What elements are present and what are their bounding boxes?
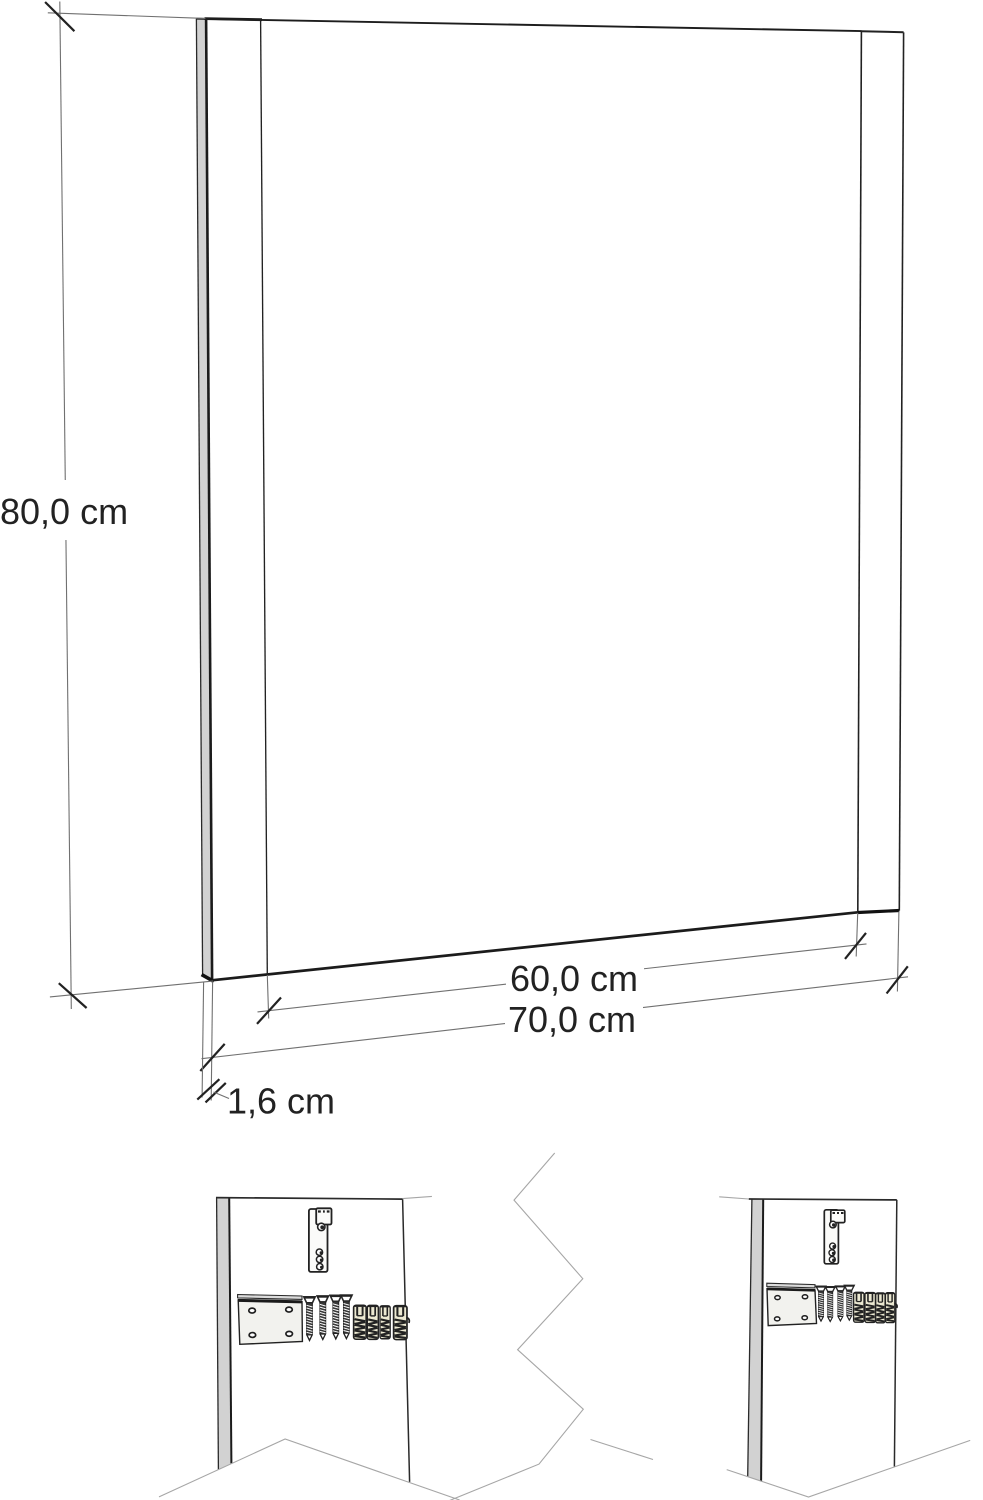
svg-text:1,6 cm: 1,6 cm xyxy=(227,1081,335,1122)
svg-text:70,0 cm: 70,0 cm xyxy=(508,999,636,1040)
svg-text:80,0 cm: 80,0 cm xyxy=(0,491,128,532)
svg-text:60,0 cm: 60,0 cm xyxy=(510,958,638,999)
